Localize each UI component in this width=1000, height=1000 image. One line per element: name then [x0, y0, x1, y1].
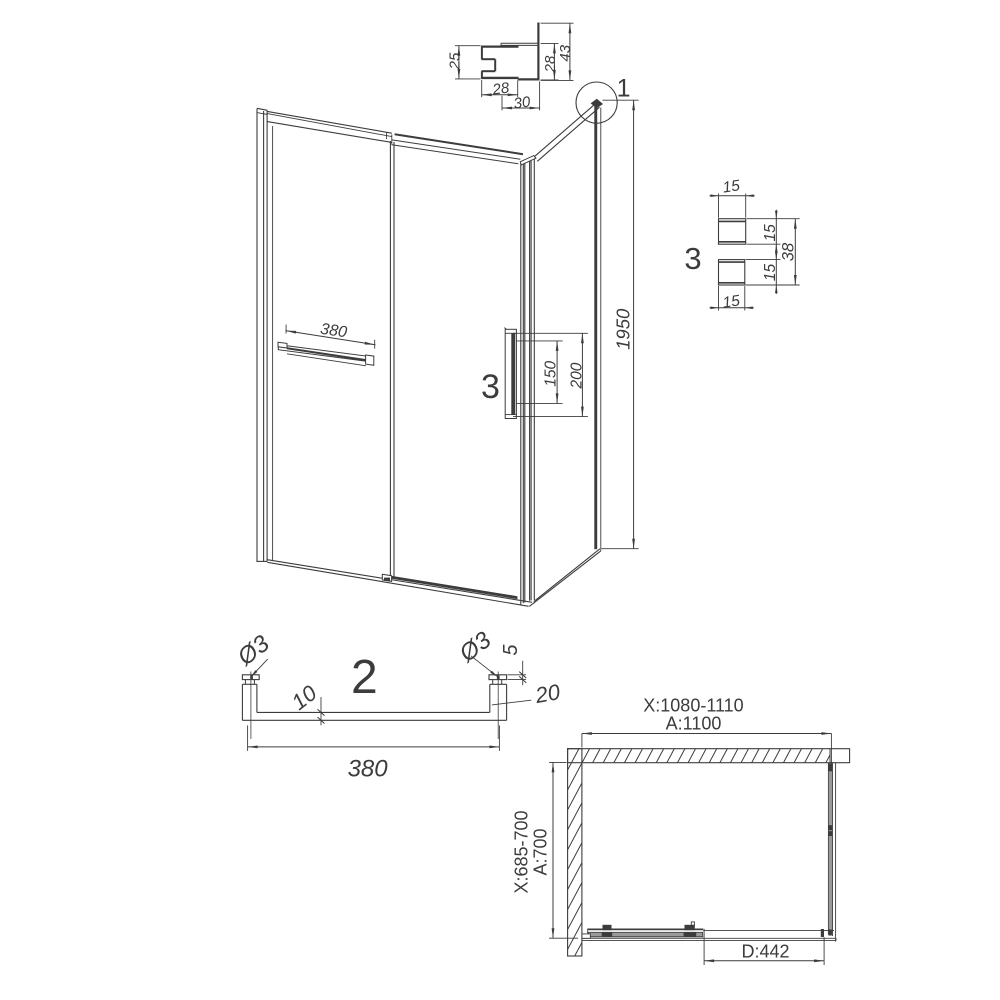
svg-text:A:700: A:700 — [531, 828, 551, 875]
svg-text:200: 200 — [568, 362, 585, 389]
svg-text:25: 25 — [446, 52, 463, 70]
svg-text:X:685-700: X:685-700 — [512, 810, 532, 893]
svg-text:3: 3 — [684, 241, 701, 276]
svg-text:Ø3: Ø3 — [454, 626, 497, 668]
svg-text:D:442: D:442 — [741, 942, 789, 962]
svg-text:A:1100: A:1100 — [666, 714, 722, 734]
svg-text:28: 28 — [490, 79, 511, 98]
svg-text:380: 380 — [319, 321, 348, 342]
svg-text:1: 1 — [617, 74, 631, 102]
svg-text:X:1080-1110: X:1080-1110 — [643, 696, 743, 716]
svg-text:3: 3 — [481, 368, 500, 406]
svg-text:15: 15 — [762, 264, 779, 282]
svg-text:Ø3: Ø3 — [232, 630, 275, 672]
svg-text:150: 150 — [542, 360, 559, 386]
svg-text:2: 2 — [351, 651, 378, 704]
svg-text:15: 15 — [762, 224, 779, 242]
svg-text:30: 30 — [513, 93, 533, 112]
svg-text:15: 15 — [722, 177, 742, 196]
svg-text:5: 5 — [500, 644, 522, 656]
svg-text:38: 38 — [780, 242, 798, 261]
svg-text:380: 380 — [348, 756, 389, 783]
svg-text:10: 10 — [287, 680, 322, 715]
svg-text:43: 43 — [557, 44, 574, 61]
svg-text:20: 20 — [532, 679, 562, 708]
svg-text:15: 15 — [722, 292, 742, 311]
svg-text:1950: 1950 — [612, 308, 633, 350]
